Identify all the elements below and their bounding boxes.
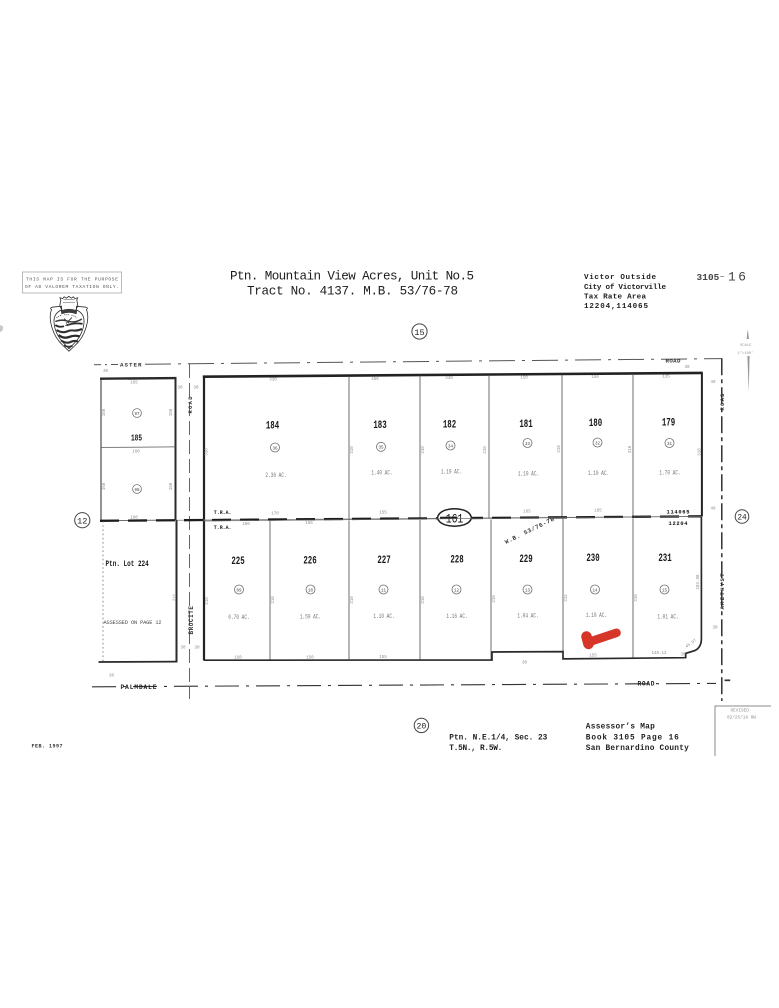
svg-text:310: 310 [635, 594, 639, 602]
svg-text:310: 310 [351, 596, 355, 604]
svg-text:SCALE: SCALE [740, 344, 752, 348]
svg-text:183: 183 [373, 419, 387, 432]
svg-text:12: 12 [77, 517, 87, 527]
svg-text:–: – [720, 272, 725, 282]
svg-text:12: 12 [454, 589, 460, 593]
svg-text:310: 310 [422, 596, 426, 604]
svg-text:229: 229 [519, 553, 532, 566]
svg-text:165: 165 [523, 510, 531, 514]
svg-text:310: 310 [422, 446, 426, 454]
svg-text:Tract No. 4137. M.B. 53/76-78: Tract No. 4137. M.B. 53/76-78 [247, 285, 458, 299]
svg-text:ROAD: ROAD [188, 396, 194, 414]
svg-text:30: 30 [194, 387, 200, 391]
svg-text:150: 150 [170, 482, 174, 490]
svg-text:210: 210 [206, 597, 210, 605]
svg-text:Ptn. N.E.1/4, Sec. 23: Ptn. N.E.1/4, Sec. 23 [449, 735, 547, 743]
svg-text:312: 312 [565, 594, 569, 602]
svg-text:165: 165 [305, 522, 313, 526]
svg-text:13: 13 [525, 589, 531, 593]
svg-text:456: 456 [371, 378, 379, 382]
svg-text:1.10 AC.: 1.10 AC. [373, 614, 394, 621]
svg-text:150: 150 [170, 408, 174, 416]
svg-text:12204,114065: 12204,114065 [584, 303, 648, 311]
svg-text:1.10 AC.: 1.10 AC. [588, 470, 609, 477]
svg-text:170: 170 [271, 512, 279, 516]
svg-text:1”=100’: 1”=100’ [738, 351, 754, 356]
svg-text:225: 225 [231, 555, 244, 568]
svg-text:140.12: 140.12 [651, 652, 667, 656]
svg-text:226: 226 [303, 554, 316, 567]
svg-text:310: 310 [558, 445, 562, 453]
svg-text:210: 210 [173, 593, 177, 601]
svg-text:30: 30 [178, 387, 184, 391]
svg-text:T.R.A.: T.R.A. [214, 525, 232, 531]
svg-text:330: 330 [269, 379, 277, 383]
svg-text:165: 165 [130, 382, 138, 386]
svg-text:09: 09 [236, 589, 242, 593]
svg-text:30: 30 [195, 647, 201, 651]
svg-text:10: 10 [308, 589, 314, 593]
svg-text:Assessor’s Map: Assessor’s Map [586, 724, 655, 732]
svg-text:02/25/16 RW: 02/25/16 RW [727, 715, 756, 720]
svg-text:31: 31 [667, 443, 673, 447]
svg-text:310: 310 [629, 445, 633, 453]
svg-text:183.98: 183.98 [697, 574, 701, 590]
svg-text:30: 30 [685, 366, 691, 370]
svg-text:161: 161 [446, 512, 464, 527]
svg-text:ASTER: ASTER [120, 362, 142, 369]
svg-text:T.5N., R.5W.: T.5N., R.5W. [449, 745, 502, 753]
svg-text:30: 30 [181, 647, 187, 651]
svg-text:310: 310 [699, 448, 703, 456]
svg-text:14: 14 [592, 589, 598, 593]
svg-text:ROAD: ROAD [720, 393, 726, 411]
svg-text:150: 150 [520, 377, 528, 381]
svg-text:City of Victorville: City of Victorville [584, 284, 666, 292]
svg-text:Victor Outside: Victor Outside [584, 274, 656, 282]
svg-text:231: 231 [658, 552, 672, 565]
svg-text:32: 32 [595, 442, 601, 446]
svg-text:155: 155 [379, 656, 387, 660]
svg-text:1.10 AC.: 1.10 AC. [518, 471, 539, 478]
svg-text:0.70 AC.: 0.70 AC. [228, 615, 249, 622]
svg-text:227: 227 [377, 554, 390, 567]
svg-text:33: 33 [525, 443, 531, 447]
svg-text:1.16 AC.: 1.16 AC. [446, 613, 467, 620]
svg-text:1.59 AC.: 1.59 AC. [300, 614, 321, 621]
svg-text:30: 30 [109, 675, 115, 679]
svg-text:185: 185 [131, 433, 142, 444]
svg-text:BROCITE: BROCITE [188, 606, 195, 635]
svg-text:100: 100 [242, 523, 250, 527]
svg-text:40: 40 [711, 508, 717, 512]
svg-text:AMETHYST: AMETHYST [720, 573, 726, 610]
svg-text:REVISED: REVISED [731, 709, 750, 714]
svg-text:PALMDALE: PALMDALE [121, 684, 157, 691]
svg-text:12204: 12204 [669, 521, 689, 527]
svg-text:40: 40 [711, 381, 717, 385]
svg-text:160: 160 [132, 451, 140, 455]
svg-text:30: 30 [522, 662, 528, 666]
svg-text:24: 24 [737, 515, 747, 523]
svg-text:150: 150 [306, 656, 314, 660]
svg-text:16: 16 [728, 269, 749, 284]
svg-text:3105: 3105 [697, 272, 720, 283]
svg-text:San Bernardino County: San Bernardino County [586, 745, 689, 753]
svg-text:30: 30 [680, 654, 686, 658]
svg-text:97: 97 [134, 413, 140, 417]
svg-text:15: 15 [662, 589, 668, 593]
svg-text:98: 98 [134, 489, 140, 493]
svg-text:1.40 AC.: 1.40 AC. [371, 470, 392, 477]
svg-text:160: 160 [234, 657, 242, 661]
svg-text:ROAD: ROAD [666, 357, 682, 364]
svg-text:184: 184 [266, 419, 280, 432]
svg-text:310: 310 [351, 446, 355, 454]
svg-text:ASSESSED ON PAGE 12: ASSESSED ON PAGE 12 [104, 620, 162, 626]
svg-text:310: 310 [484, 446, 488, 454]
svg-text:OF AD VALOREM TAXATION ONLY.: OF AD VALOREM TAXATION ONLY. [25, 284, 119, 290]
svg-text:150: 150 [103, 482, 107, 490]
svg-text:Tax Rate Area: Tax Rate Area [584, 294, 646, 302]
svg-text:2.36 AC.: 2.36 AC. [265, 473, 286, 480]
svg-text:150: 150 [103, 408, 107, 416]
svg-text:185: 185 [594, 510, 602, 514]
svg-text:180: 180 [589, 417, 602, 430]
svg-text:114065: 114065 [667, 510, 690, 516]
svg-text:15: 15 [414, 328, 424, 338]
svg-text:1.10 AC.: 1.10 AC. [586, 612, 607, 619]
svg-text:36: 36 [272, 447, 278, 451]
svg-text:T.R.A.: T.R.A. [214, 510, 232, 516]
svg-text:1.70 AC.: 1.70 AC. [659, 470, 680, 477]
svg-text:1.10 AC.: 1.10 AC. [441, 469, 462, 476]
svg-text:182: 182 [443, 418, 456, 431]
svg-text:310: 310 [272, 596, 276, 604]
svg-text:1.01 AC.: 1.01 AC. [657, 614, 678, 621]
svg-text:228: 228 [450, 553, 463, 566]
svg-text:155: 155 [589, 654, 597, 658]
svg-text:20: 20 [416, 723, 426, 732]
svg-text:35: 35 [378, 447, 384, 451]
svg-text:Ptn. Mountain View Acres, Unit: Ptn. Mountain View Acres, Unit No.5 [230, 270, 474, 284]
svg-text:FEB. 1997: FEB. 1997 [32, 744, 63, 750]
svg-text:310: 310 [206, 448, 210, 456]
svg-text:Ptn. Lot 224: Ptn. Lot 224 [106, 560, 150, 569]
svg-text:30: 30 [713, 627, 719, 631]
svg-text:ROAD: ROAD [638, 681, 655, 688]
svg-text:34: 34 [448, 445, 454, 449]
svg-text:310: 310 [493, 595, 497, 603]
svg-text:181: 181 [519, 418, 533, 431]
svg-text:30: 30 [103, 370, 109, 374]
svg-text:150: 150 [591, 376, 599, 380]
svg-text:179: 179 [662, 416, 675, 429]
svg-text:330: 330 [445, 377, 453, 381]
svg-text:230: 230 [586, 552, 599, 565]
svg-text:1.04 AC.: 1.04 AC. [517, 613, 538, 620]
svg-text:11: 11 [381, 589, 387, 593]
svg-text:Book 3105 Page 16: Book 3105 Page 16 [586, 735, 679, 743]
svg-text:135: 135 [662, 375, 670, 379]
svg-text:THIS MAP IS FOR THE PURPOSE: THIS MAP IS FOR THE PURPOSE [26, 277, 118, 283]
svg-text:155: 155 [379, 512, 387, 516]
